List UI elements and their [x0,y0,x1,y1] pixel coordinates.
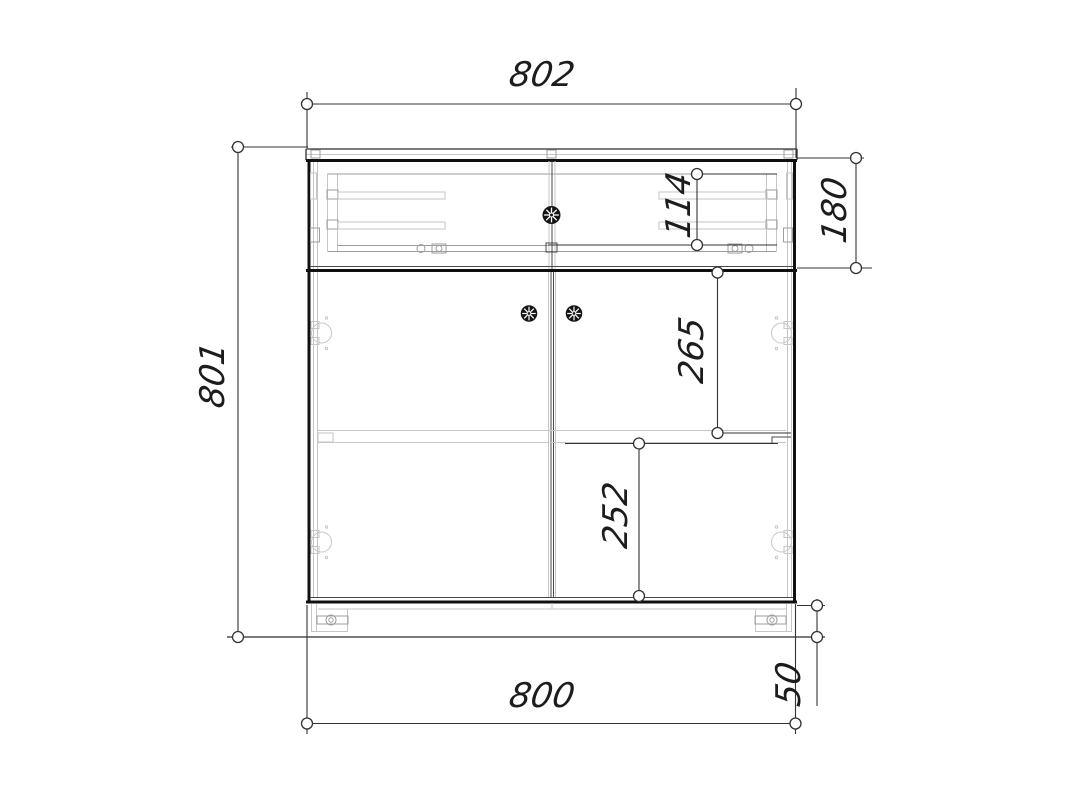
leg-right [755,604,792,632]
dim-label-bottom-width: 800 [506,676,578,716]
drawer-slide-left [327,190,446,253]
dim-label-drawer-section: 180 [815,174,855,246]
dimensions: 802 801 114 180 [193,55,872,734]
drawing-sheet: 802 801 114 180 [0,0,1067,800]
dim-drawer-opening: 114 [548,168,777,251]
plinth [227,598,825,638]
drawer-section [327,161,777,270]
leg-left [311,604,348,632]
left-door-knob [521,305,538,322]
hinge-top-right [772,317,793,350]
dim-upper-door-span: 265 [672,267,791,439]
hinge-top-left [311,317,332,350]
dim-label-drawer-opening: 114 [659,169,699,241]
dim-drawer-section: 180 [797,152,872,274]
dim-top-width: 802 [302,55,802,158]
dim-label-plinth-height: 50 [769,659,809,709]
dim-label-top-width: 802 [506,55,578,95]
hinge-bottom-left [311,526,332,559]
cam-fitting-icon [311,228,320,242]
cabinet-technical-drawing: 802 801 114 180 [0,0,1067,800]
top-panel [306,149,797,161]
dim-label-lower-door-span: 252 [596,479,636,551]
dim-bottom-width: 800 [302,604,802,734]
dim-overall-height: 801 [193,141,308,643]
dim-label-overall-height: 801 [193,339,233,411]
cabinet [227,149,825,637]
drawer-knob [543,206,561,224]
dim-label-upper-door-span: 265 [672,314,712,386]
dim-lower-door-span: 252 [565,438,778,602]
right-door-knob [566,305,583,322]
hinge-bottom-right [772,526,793,559]
